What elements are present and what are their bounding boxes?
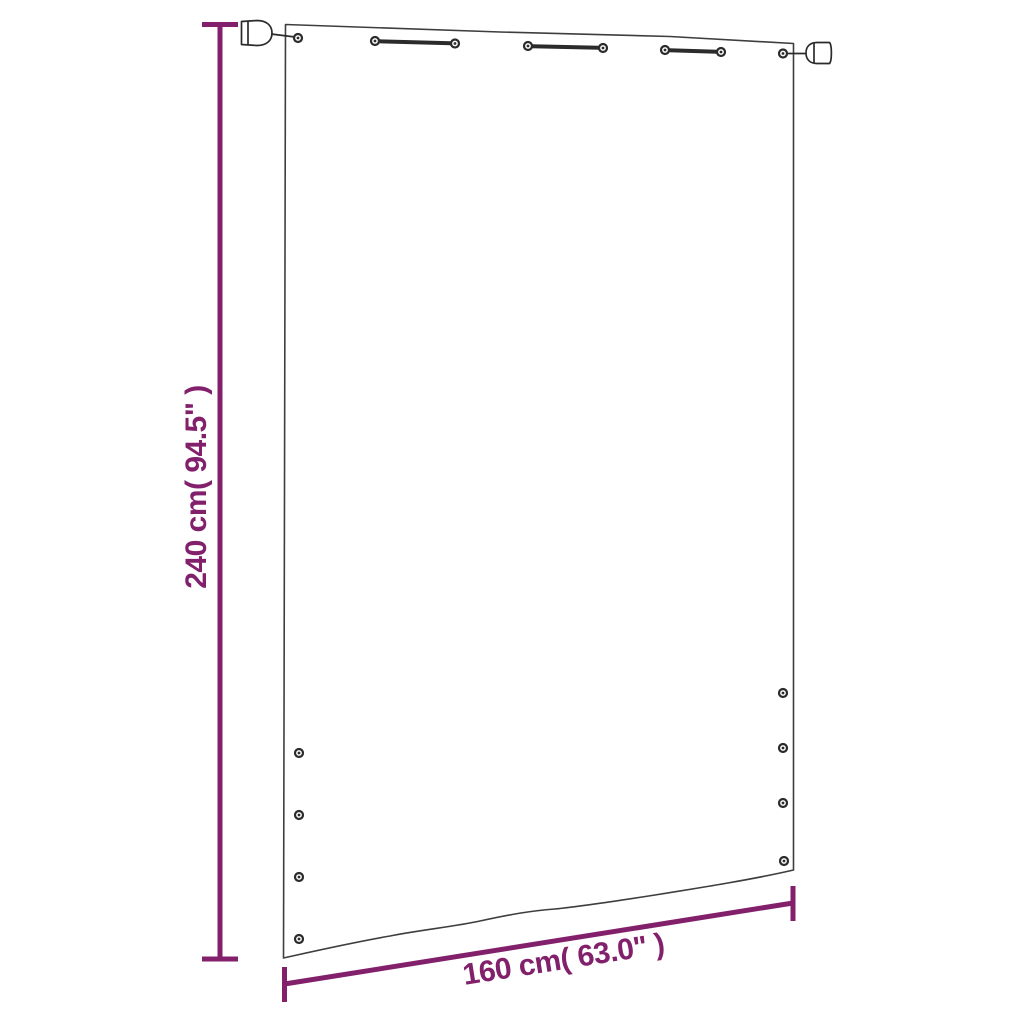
grommet-hole (298, 814, 301, 817)
grommet-hole (664, 49, 667, 52)
grommet-hole (602, 47, 605, 50)
panel-fabric-outline (284, 25, 794, 959)
height-dimension-label: 240 cm( 94.5" ) (180, 385, 213, 589)
grommet-hole (297, 37, 300, 40)
cord (669, 50, 717, 52)
grommet-hole (720, 51, 723, 54)
grommet-hole (782, 52, 785, 55)
cord (379, 41, 451, 43)
grommet-hole (527, 45, 530, 48)
grommet-hole (782, 692, 785, 695)
grommet-hole (298, 938, 301, 941)
panel-group (284, 25, 794, 959)
grommet-hole (374, 40, 377, 43)
grommet-hole (298, 752, 301, 755)
grommet-hole (454, 42, 457, 45)
grommet-hole (783, 860, 786, 863)
rod-end-cap-left (242, 21, 273, 46)
product-dimension-diagram: 240 cm( 94.5" ) 160 cm( 63.0" ) (0, 0, 1024, 1024)
grommet-hole (298, 876, 301, 879)
cord (532, 46, 599, 48)
grommet-hole (782, 802, 785, 805)
rod-end-cap-right (806, 43, 831, 64)
grommet-hole (782, 747, 785, 750)
